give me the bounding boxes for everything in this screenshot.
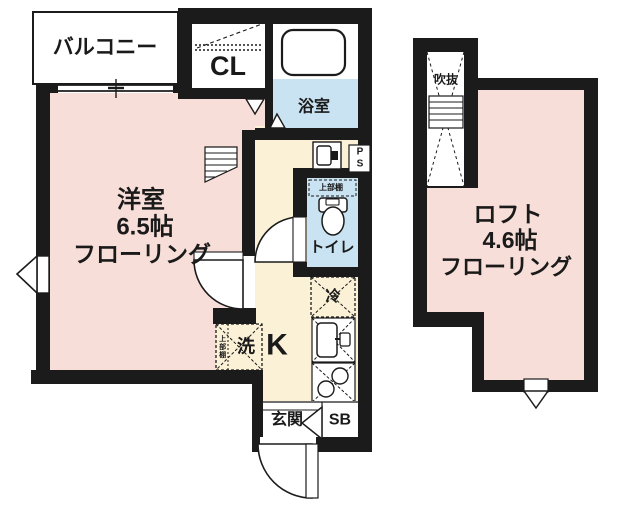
kitchen-label: K (266, 329, 288, 361)
room-label-floor: フローリング (73, 242, 211, 266)
side-window (17, 256, 49, 293)
loft-hatch (524, 379, 548, 408)
room-label-name: 洋室 (117, 187, 165, 212)
washer-label: 洗 (237, 338, 255, 357)
loft-label-floor: フローリング (440, 255, 572, 278)
closet-label: CL (210, 52, 246, 80)
toilet-label: トイレ (309, 240, 354, 256)
loft-label-size: 4.6帖 (483, 228, 538, 252)
fridge-label: 冷 (325, 289, 340, 305)
entrance-label: 玄関 (271, 413, 303, 430)
bathtub (282, 30, 345, 75)
kitchen-sink (312, 318, 355, 362)
floorplan: バルコニー CL 浴室 洋室 6.5帖 フローリング トイレ 上部棚 K 冷 洗… (0, 0, 640, 515)
stove (312, 363, 355, 402)
loft-ladder (429, 96, 463, 128)
water-heater (313, 142, 341, 169)
loft-label-name: ロフト (474, 202, 543, 226)
shoebox-label: SB (329, 413, 351, 430)
entrance-door (258, 437, 318, 498)
washer-shelf-label: 上部棚 (218, 335, 225, 359)
closet-rod (195, 24, 263, 50)
toilet-shelf-label: 上部棚 (319, 184, 343, 192)
room-label-size: 6.5帖 (116, 214, 173, 239)
balcony-label: バルコニー (53, 37, 158, 59)
pipe-space-label: PS (355, 147, 366, 170)
bath-label: 浴室 (298, 100, 330, 117)
loft-floor-left (427, 188, 478, 312)
void-label: 吹抜 (434, 74, 458, 87)
